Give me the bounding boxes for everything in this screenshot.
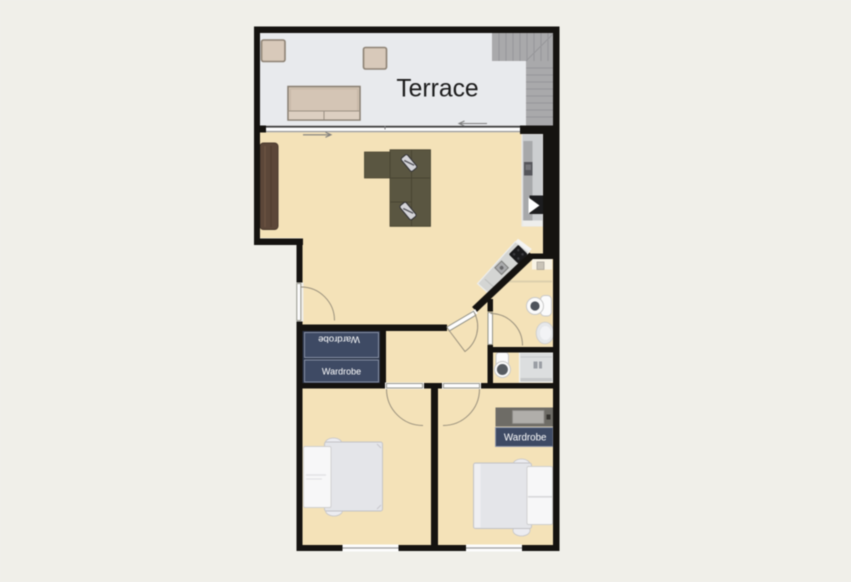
svg-text:Terrace: Terrace: [396, 76, 478, 103]
svg-text:Wardrobe: Wardrobe: [504, 433, 547, 444]
svg-text:Wardrobe: Wardrobe: [322, 367, 361, 377]
svg-text:Wardrobe: Wardrobe: [318, 334, 360, 345]
